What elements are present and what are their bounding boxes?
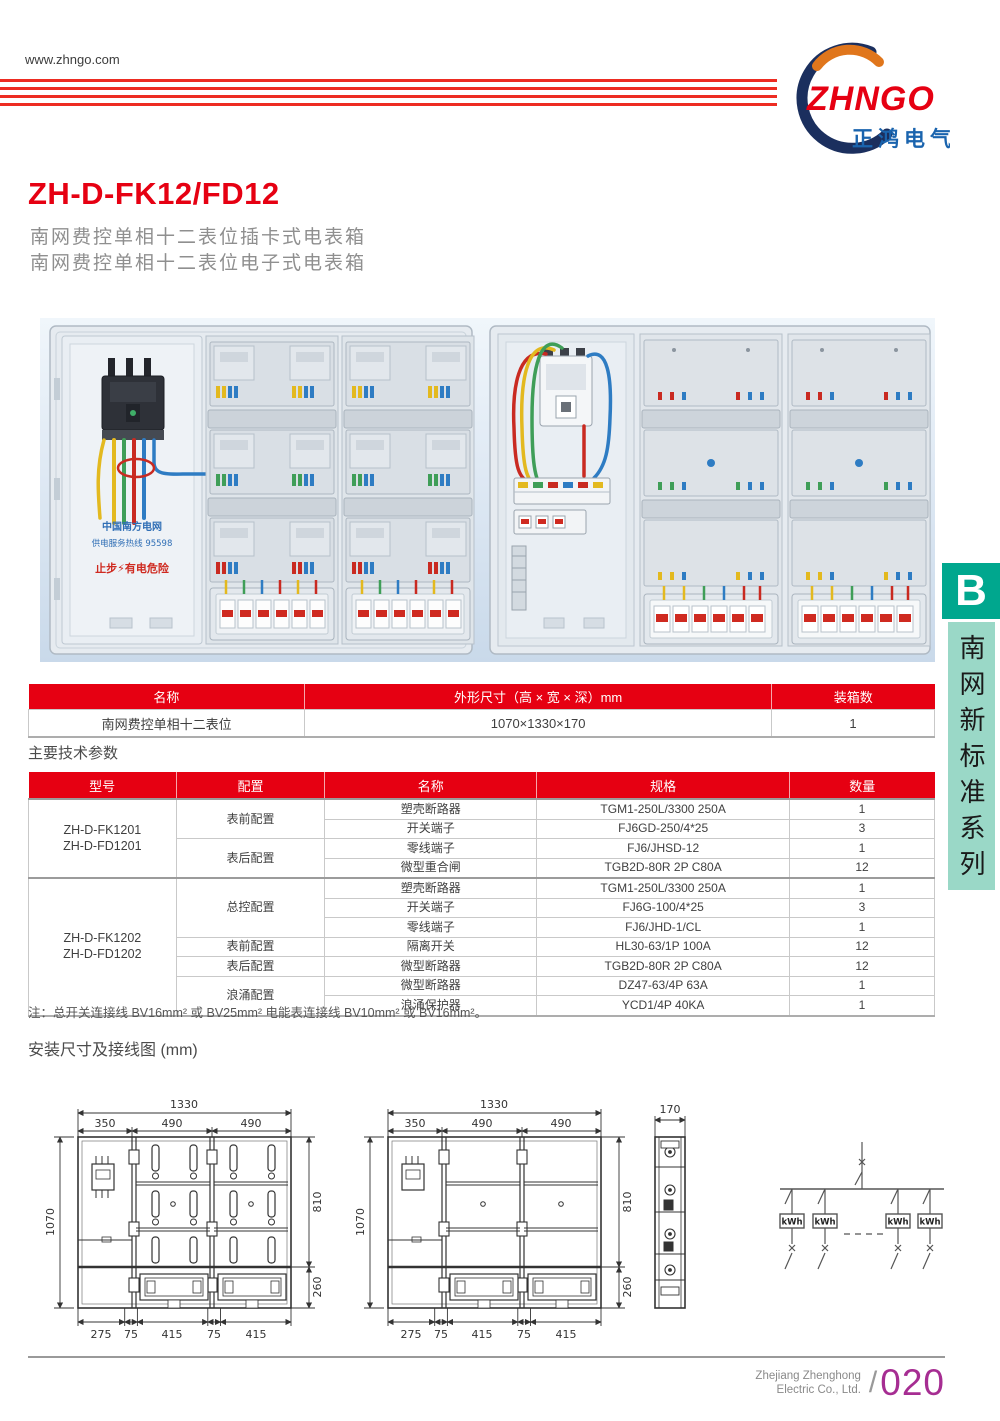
front-view-empty-labels: 1330 350 490 490 1070 810 260 275 75 415…	[354, 1098, 634, 1341]
param-spec: YCD1/4P 40KA	[537, 996, 790, 1016]
param-name: 微型断路器	[325, 957, 537, 977]
param-qty: 1	[790, 878, 935, 898]
series-banner-text: 南网新标准系列	[953, 634, 990, 886]
svg-text:810: 810	[311, 1192, 324, 1213]
spec-header-size: 外形尺寸（高 × 宽 × 深）mm	[305, 684, 772, 710]
params-header-qty: 数量	[790, 772, 935, 799]
spec-cell-name: 南网费控单相十二表位	[29, 710, 305, 738]
param-spec: FJ6/JHD-1/CL	[537, 918, 790, 938]
svg-text:75: 75	[124, 1328, 138, 1341]
svg-text:275: 275	[91, 1328, 112, 1341]
svg-text:490: 490	[472, 1117, 493, 1130]
svg-text:1330: 1330	[480, 1098, 508, 1111]
param-spec: TGB2D-80R 2P C80A	[537, 858, 790, 878]
logo-graphic: ZHNGO 正鸿电气	[755, 38, 950, 160]
svg-text:kWh: kWh	[781, 1218, 802, 1228]
wiring-schematic-labels: kWh kWh kWh kWh	[781, 1218, 940, 1228]
param-name: 塑壳断路器	[325, 799, 537, 819]
param-spec: FJ6GD-250/4*25	[537, 819, 790, 839]
dimension-drawings: 1330 350 490 490 1070 810 260 275 75 415…	[30, 1082, 970, 1360]
param-name: 零线端子	[325, 839, 537, 859]
front-view-detailed	[78, 1137, 291, 1308]
logo-wordmark: ZHNGO	[806, 80, 935, 118]
svg-text:275: 275	[401, 1328, 422, 1341]
svg-text:350: 350	[405, 1117, 426, 1130]
param-spec: TGM1-250L/3300 250A	[537, 878, 790, 898]
section-title-params: 主要技术参数	[28, 742, 118, 763]
product-subtitle-2: 南网费控单相十二表位电子式电表箱	[30, 248, 366, 275]
param-spec: TGB2D-80R 2P C80A	[537, 957, 790, 977]
spec-header-qty: 装箱数	[771, 684, 934, 710]
spec-cell-size: 1070×1330×170	[305, 710, 772, 738]
side-view-label: 170	[660, 1103, 681, 1116]
param-name: 零线端子	[325, 918, 537, 938]
header-stripe	[0, 79, 777, 82]
param-qty: 12	[790, 937, 935, 957]
svg-text:490: 490	[162, 1117, 183, 1130]
param-qty: 1	[790, 918, 935, 938]
catalog-page: www.zhngo.com ZHNGO 正鸿电气 ZH-D-FK12/FD12 …	[0, 0, 1000, 1421]
param-qty: 3	[790, 898, 935, 918]
header-stripe	[0, 95, 777, 98]
front-view-empty	[388, 1137, 601, 1308]
param-spec: FJ6/JHSD-12	[537, 839, 790, 859]
svg-text:kWh: kWh	[814, 1218, 835, 1228]
page-number: 020	[880, 1362, 945, 1404]
section-badge: B	[942, 563, 1000, 619]
main-breaker	[540, 348, 592, 426]
wiring-schematic	[780, 1142, 944, 1269]
svg-text:kWh: kWh	[919, 1218, 940, 1228]
svg-text:1070: 1070	[44, 1208, 57, 1236]
meter-box-photo-right	[488, 318, 935, 662]
svg-text:810: 810	[621, 1192, 634, 1213]
logo-chinese-name: 正鸿电气	[852, 127, 950, 151]
side-view	[655, 1137, 685, 1308]
param-qty: 1	[790, 799, 935, 819]
svg-text:260: 260	[621, 1277, 634, 1298]
param-name: 隔离开关	[325, 937, 537, 957]
spec-row: 南网费控单相十二表位 1070×1330×170 1	[29, 710, 935, 738]
note-text: 注：总开关连接线 BV16mm² 或 BV25mm² 电能表连接线 BV10mm…	[28, 1002, 487, 1021]
params-header-name: 名称	[325, 772, 537, 799]
breaker-strip	[644, 586, 778, 644]
footer-separator: /	[869, 1366, 877, 1400]
param-row: ZH-D-FK1202 ZH-D-FD1202 总控配置 塑壳断路器 TGM1-…	[29, 878, 935, 898]
product-subtitle-1: 南网费控单相十二表位插卡式电表箱	[30, 222, 366, 249]
section-title-install: 安装尺寸及接线图 (mm)	[28, 1036, 198, 1060]
svg-text:415: 415	[556, 1328, 577, 1341]
company-logo: ZHNGO 正鸿电气	[755, 38, 950, 160]
svg-text:350: 350	[95, 1117, 116, 1130]
param-spec: DZ47-63/4P 63A	[537, 976, 790, 996]
param-name: 塑壳断路器	[325, 878, 537, 898]
hotline-label: 供电服务热线 95598	[92, 538, 173, 549]
front-view-detailed-labels: 1330 350 490 490 1070 810 260 275 75 415…	[44, 1098, 324, 1341]
param-spec: TGM1-250L/3300 250A	[537, 799, 790, 819]
svg-text:kWh: kWh	[887, 1218, 908, 1228]
config-cell: 表后配置	[176, 957, 325, 977]
header-stripe	[0, 87, 777, 90]
svg-text:75: 75	[207, 1328, 221, 1341]
warning-label: 止步⚡有电危险	[95, 561, 170, 575]
svg-text:75: 75	[517, 1328, 531, 1341]
param-name: 开关端子	[325, 819, 537, 839]
param-name: 微型重合闸	[325, 858, 537, 878]
param-qty: 12	[790, 858, 935, 878]
logo-swoosh-orange	[817, 50, 879, 66]
params-header-spec: 规格	[537, 772, 790, 799]
meter-box-photo-left: 中国南方电网 供电服务热线 95598 止步⚡有电危险	[40, 318, 482, 662]
grid-label: 中国南方电网	[102, 520, 162, 533]
company-name: Zhejiang Zhenghong Electric Co., Ltd.	[755, 1369, 861, 1397]
svg-text:415: 415	[472, 1328, 493, 1341]
footer: Zhejiang Zhenghong Electric Co., Ltd. / …	[660, 1362, 945, 1404]
param-name: 开关端子	[325, 898, 537, 918]
param-name: 微型断路器	[325, 976, 537, 996]
svg-text:415: 415	[162, 1328, 183, 1341]
param-row: ZH-D-FK1201 ZH-D-FD1201 表前配置 塑壳断路器 TGM1-…	[29, 799, 935, 819]
spec-table: 名称 外形尺寸（高 × 宽 × 深）mm 装箱数 南网费控单相十二表位 1070…	[28, 684, 935, 738]
params-header-model: 型号	[29, 772, 177, 799]
config-cell: 表前配置	[176, 937, 325, 957]
config-cell: 表后配置	[176, 839, 325, 879]
config-cell: 表前配置	[176, 799, 325, 839]
page-title: ZH-D-FK12/FD12	[28, 176, 280, 212]
footer-divider	[28, 1356, 945, 1358]
installation-diagrams: 1330 350 490 490 1070 810 260 275 75 415…	[30, 1082, 970, 1360]
series-banner: 南网新标准系列	[948, 622, 995, 890]
param-spec: HL30-63/1P 100A	[537, 937, 790, 957]
svg-text:490: 490	[241, 1117, 262, 1130]
params-header-config: 配置	[176, 772, 325, 799]
model-cell: ZH-D-FK1201 ZH-D-FD1201	[29, 799, 177, 878]
header-stripe	[0, 103, 777, 106]
param-qty: 12	[790, 957, 935, 977]
config-cell: 总控配置	[176, 878, 325, 937]
breaker-strip	[792, 586, 926, 644]
spec-cell-qty: 1	[771, 710, 934, 738]
svg-text:1330: 1330	[170, 1098, 198, 1111]
website-url: www.zhngo.com	[25, 52, 120, 67]
svg-text:75: 75	[434, 1328, 448, 1341]
svg-text:260: 260	[311, 1277, 324, 1298]
svg-text:1070: 1070	[354, 1208, 367, 1236]
model-cell: ZH-D-FK1202 ZH-D-FD1202	[29, 878, 177, 1016]
svg-text:415: 415	[246, 1328, 267, 1341]
breaker-strip	[210, 580, 334, 640]
product-photos: 中国南方电网 供电服务热线 95598 止步⚡有电危险	[40, 318, 935, 662]
breaker-strip	[346, 580, 470, 640]
param-spec: FJ6G-100/4*25	[537, 898, 790, 918]
param-qty: 1	[790, 839, 935, 859]
spec-header-name: 名称	[29, 684, 305, 710]
param-qty: 3	[790, 819, 935, 839]
svg-text:490: 490	[551, 1117, 572, 1130]
param-qty: 1	[790, 976, 935, 996]
param-qty: 1	[790, 996, 935, 1016]
side-view-dims	[655, 1116, 685, 1137]
params-table: 型号 配置 名称 规格 数量 ZH-D-FK1201 ZH-D-FD1201 表…	[28, 772, 935, 1017]
